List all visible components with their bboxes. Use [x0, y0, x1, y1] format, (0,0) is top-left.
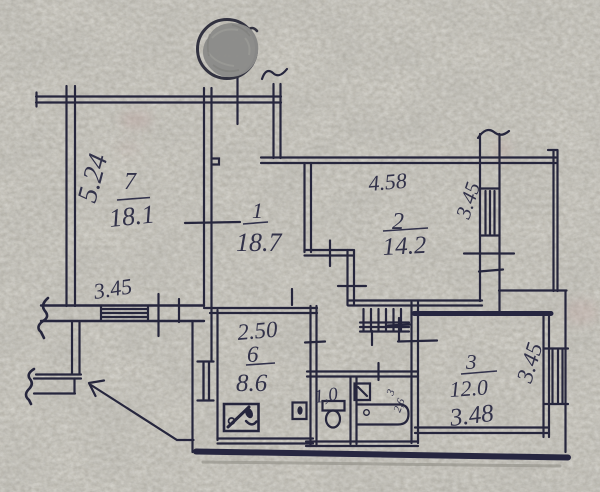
- svg-text:2.50: 2.50: [236, 317, 279, 345]
- svg-text:2: 2: [392, 209, 404, 235]
- svg-text:3: 3: [465, 350, 477, 374]
- svg-text:1: 1: [252, 198, 263, 223]
- svg-text:1,0: 1,0: [313, 384, 340, 408]
- svg-text:18.7: 18.7: [236, 228, 283, 257]
- svg-text:3.48: 3.48: [447, 400, 495, 432]
- svg-text:7: 7: [124, 169, 137, 195]
- svg-text:8.6: 8.6: [236, 370, 268, 397]
- svg-text:18.1: 18.1: [108, 199, 156, 233]
- svg-text:12.0: 12.0: [449, 374, 489, 402]
- svg-text:6: 6: [247, 342, 259, 367]
- svg-text:14.2: 14.2: [382, 232, 427, 261]
- svg-text:4.58: 4.58: [367, 168, 408, 196]
